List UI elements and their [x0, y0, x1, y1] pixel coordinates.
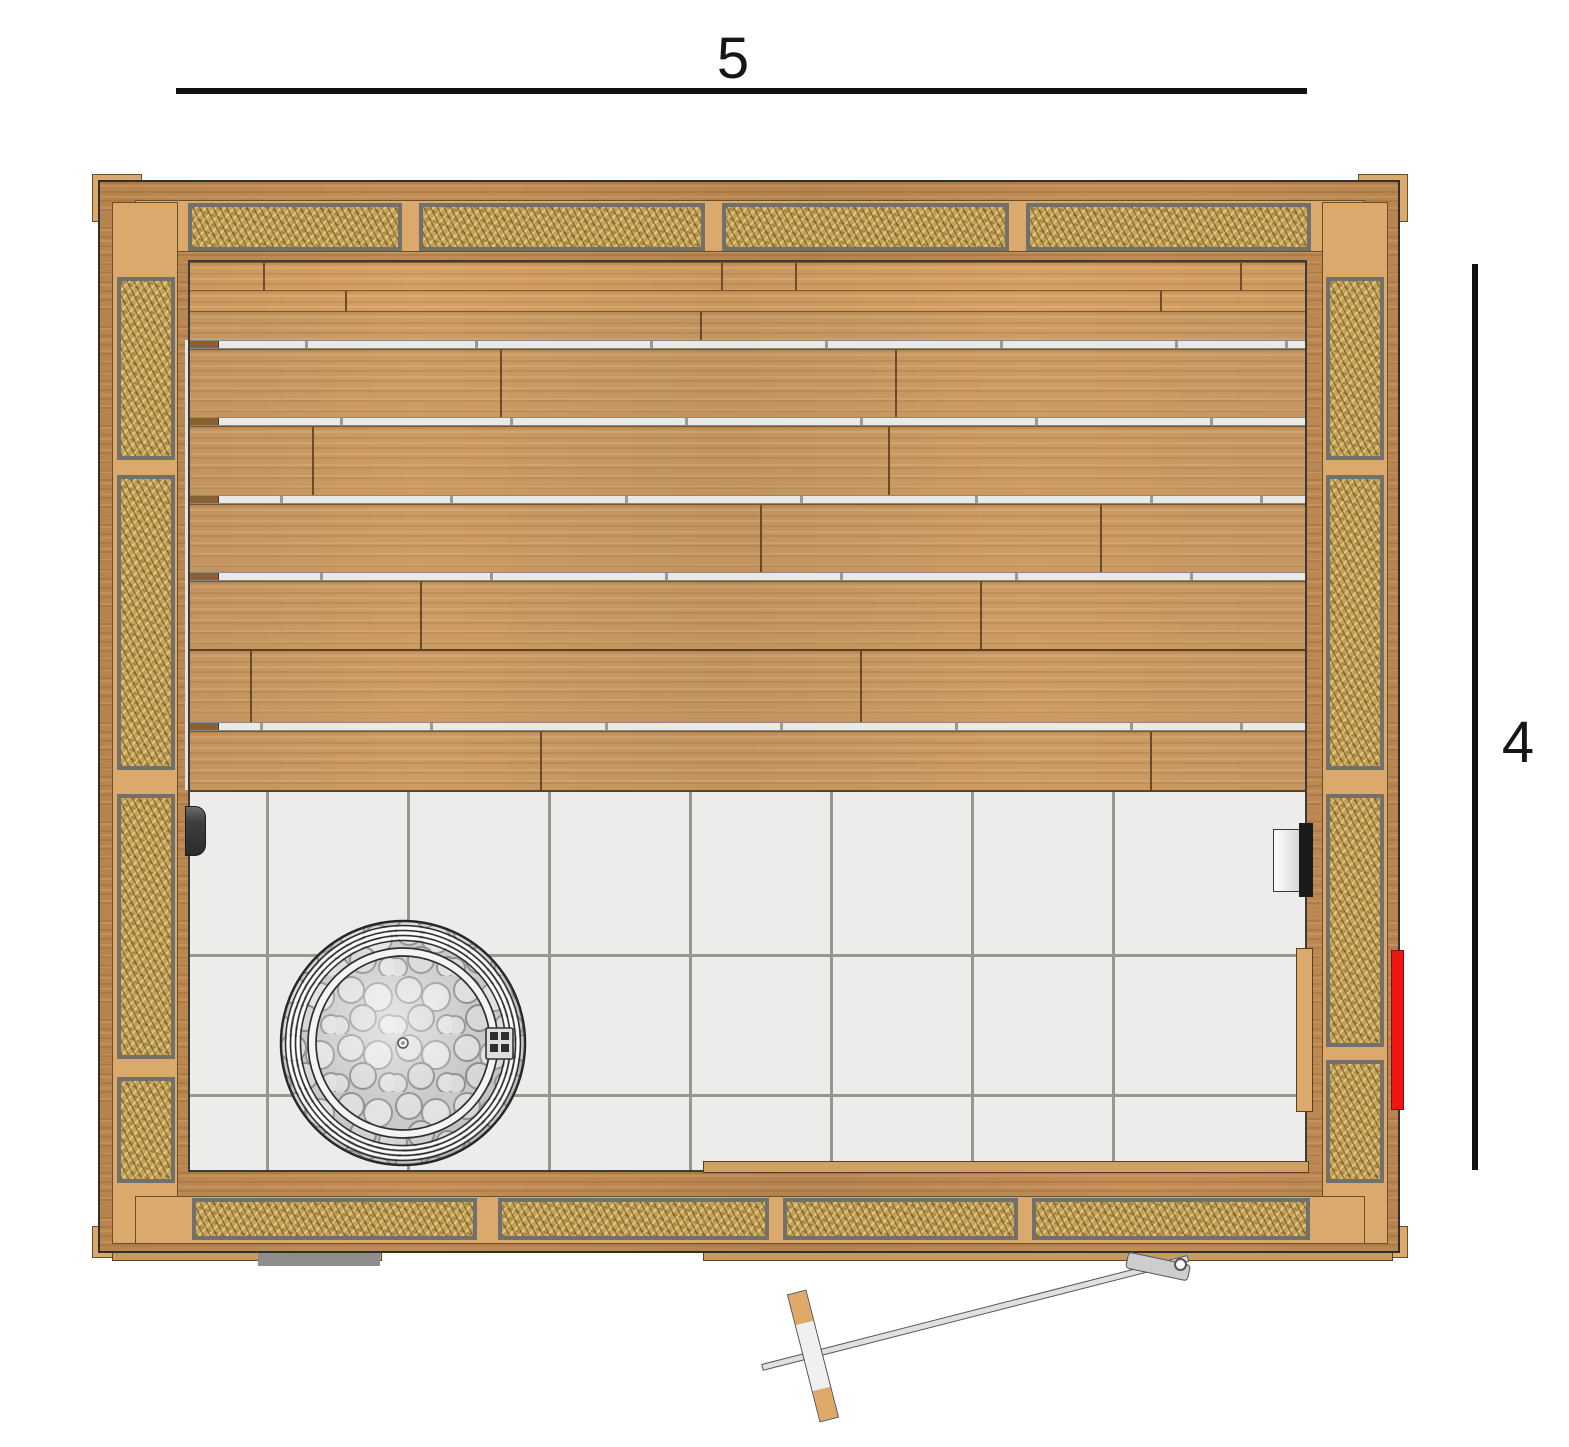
insulation-panel-top-3 [722, 203, 1009, 251]
insulation-panel-top-1 [188, 203, 402, 251]
insulation-panel-top-4 [1026, 203, 1311, 251]
grey-floor-mat [258, 1253, 380, 1266]
insulation-panel-left-4 [117, 1077, 175, 1183]
insulation-panel-left-2 [117, 475, 175, 770]
sauna-heater [278, 918, 528, 1168]
wall-vent-cylinder [1273, 829, 1300, 892]
dimension-height-label: 4 [1488, 714, 1548, 772]
dimension-width-label: 5 [703, 30, 763, 88]
glass-door [761, 1255, 1189, 1371]
heater-control-box [486, 1028, 513, 1059]
insulation-panel-bottom-1 [192, 1198, 477, 1240]
insulation-panel-bottom-4 [1032, 1198, 1310, 1240]
insulation-panel-bottom-3 [783, 1198, 1018, 1240]
sauna-floor-plan: 5 4 [0, 0, 1569, 1447]
door-threshold [703, 1161, 1309, 1173]
dimension-height-line [1472, 264, 1478, 1170]
door-handle-black [185, 806, 206, 856]
insulation-panel-right-3 [1326, 794, 1384, 1047]
heater-control-unit [1391, 950, 1404, 1110]
dimension-width-line [176, 88, 1307, 94]
insulation-panel-left-3 [117, 794, 175, 1059]
insulation-panel-top-2 [419, 203, 705, 251]
insulation-panel-left-1 [117, 277, 175, 460]
wall-vent-cap [1299, 823, 1313, 897]
handle-cap-top [788, 1291, 813, 1325]
insulation-panel-right-1 [1326, 277, 1384, 460]
handle-cap-bottom [813, 1387, 838, 1421]
door-hinge-pin [1174, 1258, 1187, 1271]
insulation-panel-right-2 [1326, 475, 1384, 770]
base-platform-right [703, 1252, 1393, 1261]
insulation-panel-bottom-2 [498, 1198, 769, 1240]
heater-body [281, 921, 525, 1165]
right-wall-jamb [1296, 948, 1313, 1112]
insulation-panel-right-4 [1326, 1060, 1384, 1183]
